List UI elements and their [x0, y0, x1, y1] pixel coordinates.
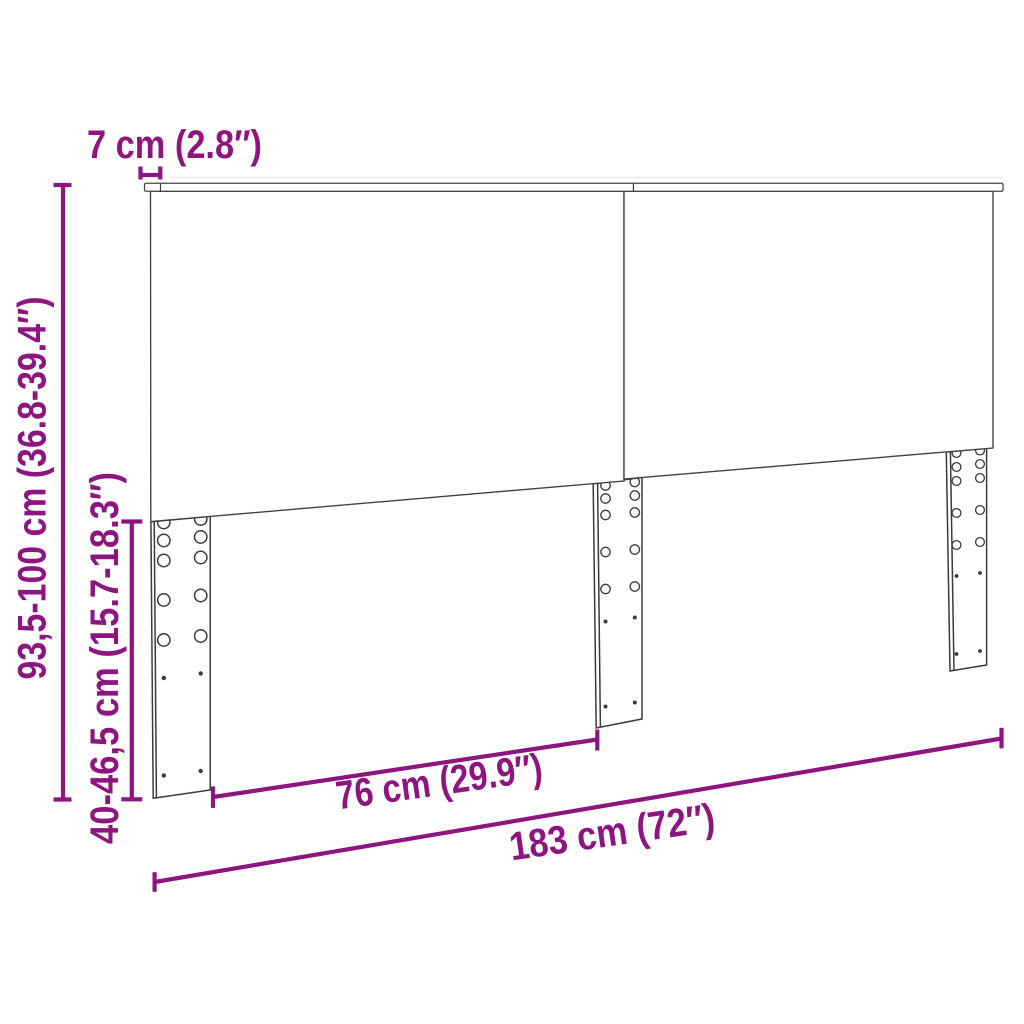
- svg-text:40-46,5 cm (15.7-18.3″): 40-46,5 cm (15.7-18.3″): [83, 472, 127, 844]
- svg-text:93,5-100 cm (36.8-39.4″): 93,5-100 cm (36.8-39.4″): [11, 297, 55, 680]
- svg-text:7 cm (2.8″): 7 cm (2.8″): [87, 123, 262, 167]
